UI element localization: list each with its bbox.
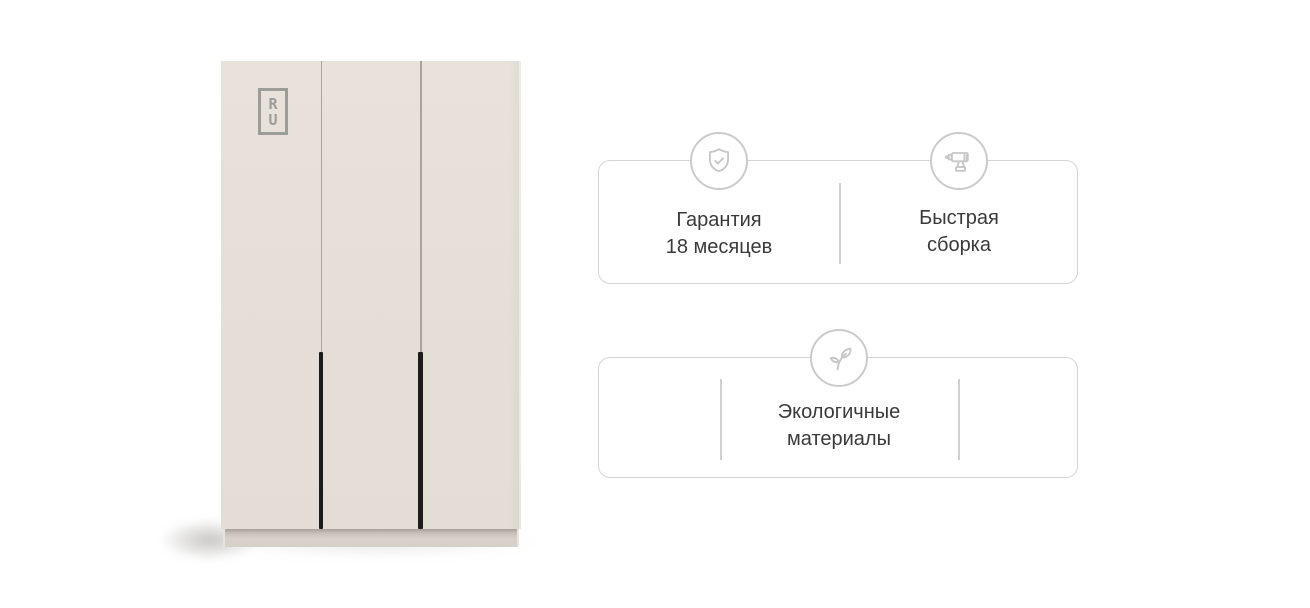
icon-circle [810, 329, 868, 387]
feature-label-line: Гарантия [599, 207, 839, 234]
shield-check-icon [703, 145, 735, 177]
feature-card-materials: Экологичные материалы [598, 357, 1078, 478]
icon-circle [690, 132, 748, 190]
feature-warranty: Гарантия 18 месяцев [599, 207, 839, 261]
wardrobe-image: R U [221, 61, 521, 547]
drill-icon [943, 145, 975, 177]
brand-logo: R U [258, 88, 288, 135]
feature-label-line: 18 месяцев [599, 234, 839, 261]
door-handle [418, 352, 423, 529]
wardrobe-doors: R U [221, 61, 521, 529]
brand-logo-letter: U [268, 112, 277, 128]
leaf-icon [823, 342, 855, 374]
feature-label-line: Экологичные [599, 399, 1079, 426]
brand-logo-letter: R [268, 96, 277, 112]
icon-circle [930, 132, 988, 190]
feature-assembly: Быстрая сборка [839, 205, 1079, 259]
feature-eco-materials: Экологичные материалы [599, 399, 1079, 453]
feature-label-line: материалы [599, 426, 1079, 453]
feature-card-warranty-assembly: Гарантия 18 месяцев Быстрая сборка [598, 160, 1078, 284]
wardrobe-base [223, 529, 519, 547]
product-feature-banner: R U Гарантия [0, 0, 1310, 608]
feature-label-line: Быстрая [839, 205, 1079, 232]
feature-label-line: сборка [839, 232, 1079, 259]
door-handle [319, 352, 324, 529]
